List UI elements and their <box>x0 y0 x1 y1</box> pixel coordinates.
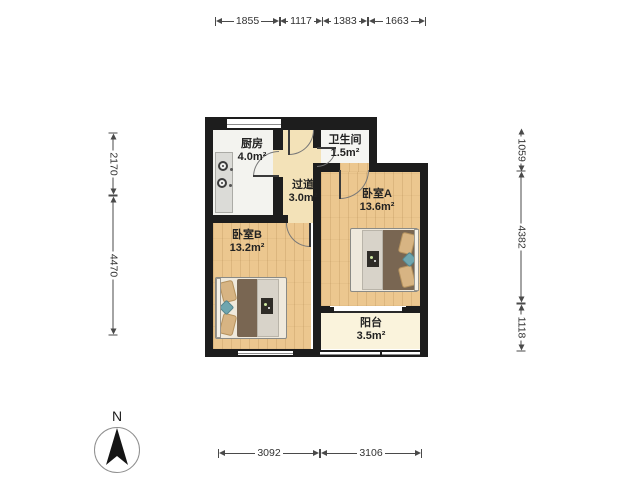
room-area: 13.6m² <box>360 201 395 214</box>
dimension-bottom: 3092 3106 <box>218 445 422 461</box>
dimension-value: 1117 <box>288 16 314 27</box>
dimension-value: 1059 <box>516 137 527 164</box>
floor-plan: 厨房 4.0m² 卫生间 1.5m² 过道 3.0m² 卧室A 13.6m² 卧… <box>0 0 640 480</box>
dimension-value: 3106 <box>357 448 384 459</box>
wall <box>273 130 283 150</box>
headboard <box>216 278 221 338</box>
room-area: 1.5m² <box>329 147 362 160</box>
wall <box>402 307 406 313</box>
wall <box>313 130 321 148</box>
wall <box>293 349 320 357</box>
room-area: 4.0m² <box>238 151 267 164</box>
bedroom-a-door-leaf <box>339 170 341 199</box>
wall <box>420 163 428 357</box>
room-label-kitchen: 厨房 4.0m² <box>238 138 267 164</box>
bed-accessory <box>261 298 273 314</box>
balcony-slider-track <box>330 311 406 313</box>
dimension-value: 4382 <box>516 223 527 250</box>
room-area: 13.2m² <box>230 242 265 255</box>
compass: N <box>94 408 140 474</box>
headboard <box>414 229 419 291</box>
bedroom-b-door-opening <box>288 215 313 223</box>
dimension-value: 2170 <box>108 150 119 177</box>
room-area: 3.5m² <box>357 330 386 343</box>
wall <box>313 306 330 313</box>
north-label: N <box>94 408 140 424</box>
room-label-bedroom-b: 卧室B 13.2m² <box>230 229 265 255</box>
dimension-value: 1663 <box>383 16 410 27</box>
north-arrow-icon <box>94 427 140 473</box>
stove-knob-icon <box>229 184 232 187</box>
room-area: 3.0m² <box>289 192 318 205</box>
bedroom-b-window <box>238 349 293 357</box>
room-label-bathroom: 卫生间 1.5m² <box>329 134 362 160</box>
room-name: 卧室B <box>230 229 265 242</box>
wall <box>205 349 238 357</box>
kitchen-window <box>227 117 281 130</box>
stove-knob-icon <box>230 168 233 171</box>
entry-door-leaf <box>288 130 290 155</box>
wall <box>205 117 213 357</box>
dimension-top: 1855 1117 1383 1663 <box>215 13 426 29</box>
dimension-value: 4470 <box>108 252 119 279</box>
wall <box>406 306 428 313</box>
wall <box>330 307 334 313</box>
room-name: 过道 <box>289 179 318 192</box>
balcony-window <box>320 350 420 357</box>
room-name: 卧室A <box>360 188 395 201</box>
wall <box>205 215 288 223</box>
room-name: 厨房 <box>238 138 267 151</box>
dimension-value: 1118 <box>516 315 527 341</box>
dimension-value: 1855 <box>234 16 261 27</box>
stove-burner-icon <box>217 178 227 188</box>
room-label-balcony: 阳台 3.5m² <box>357 317 386 343</box>
room-name: 阳台 <box>357 317 386 330</box>
dimension-value: 1383 <box>331 16 358 27</box>
room-name: 卫生间 <box>329 134 362 147</box>
dimension-right: 1059 4382 1118 <box>514 129 530 352</box>
room-label-hallway: 过道 3.0m² <box>289 179 318 205</box>
kitchen-door-leaf <box>253 175 279 177</box>
stove-burner-icon <box>218 161 228 171</box>
bedroom-b-door-leaf <box>309 223 311 247</box>
dimension-left: 2170 4470 <box>106 133 122 336</box>
dimension-value: 3092 <box>255 448 282 459</box>
room-label-bedroom-a: 卧室A 13.6m² <box>360 188 395 214</box>
bed-accessory <box>367 251 379 267</box>
balcony-window-divider <box>380 350 382 357</box>
